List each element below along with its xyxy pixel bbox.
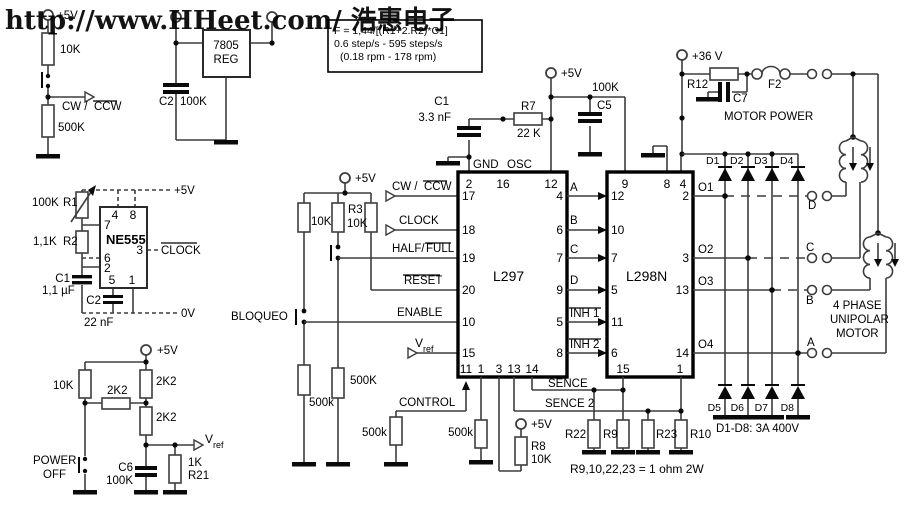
- o1-label: O1: [698, 182, 713, 194]
- phase-signal-wires: A B C D INH 1 INH 2: [567, 182, 607, 357]
- gnd-pin-label: GND: [473, 159, 499, 171]
- ground: [636, 450, 660, 455]
- pin: 3: [682, 251, 689, 265]
- sense-resistor-note: R9,10,22,23 = 1 ohm 2W: [570, 462, 704, 476]
- r23-ref: R23: [656, 429, 677, 441]
- o3-label: O3: [698, 276, 713, 288]
- connector-pin: [808, 286, 817, 295]
- resistor-r22: [588, 420, 600, 448]
- ccw-label: CCW: [94, 101, 122, 113]
- pin: 9: [556, 283, 563, 297]
- pin: 8: [664, 177, 671, 191]
- resistor-500k: [390, 417, 402, 445]
- r10-ref: R10: [690, 429, 711, 441]
- connector-pin: [823, 70, 832, 79]
- resistor-r8: [515, 437, 527, 465]
- pin: 19: [462, 251, 476, 265]
- motor-label-1: 4 PHASE: [833, 300, 882, 312]
- pin: 7: [556, 251, 563, 265]
- resistor-10k: [298, 203, 310, 232]
- pin: 14: [525, 362, 539, 376]
- r-value: 500k: [309, 397, 334, 409]
- sence-label: SENCE: [548, 378, 588, 390]
- phase-b-conn-label: B: [806, 295, 814, 307]
- enable-label: ENABLE: [397, 307, 443, 319]
- ground: [73, 490, 97, 495]
- c7-ref: C7: [733, 93, 748, 105]
- ground: [214, 140, 238, 145]
- ground: [669, 450, 693, 455]
- resistor-500k: [42, 105, 54, 137]
- resistor-2k2: [140, 407, 152, 435]
- cap-ref: C2: [159, 96, 174, 108]
- connector-pin: [808, 254, 817, 263]
- r21-ref: R21: [188, 470, 209, 482]
- ground: [713, 415, 737, 420]
- pin: 1: [478, 362, 485, 376]
- plus5v-terminal: [141, 345, 151, 355]
- plus36v-terminal: [677, 50, 687, 60]
- resistor-r12: [710, 68, 738, 80]
- resistor-2k2: [102, 398, 130, 409]
- formula-line3: (0.18 rpm - 178 rpm): [340, 51, 436, 63]
- connector-pin: [823, 286, 832, 295]
- resistor-r7: [514, 113, 542, 125]
- connector-pin: [823, 192, 832, 201]
- ground: [736, 415, 760, 420]
- pin: 5: [109, 273, 116, 287]
- phase-a-label: A: [570, 182, 578, 194]
- pin: 2: [682, 189, 689, 203]
- o4-label: O4: [698, 339, 714, 351]
- full-label: FULL: [426, 243, 455, 255]
- cw-label: CW /: [62, 101, 88, 113]
- vref-label: V: [415, 336, 423, 350]
- c1-ref: C1: [55, 273, 70, 285]
- r8-value: 10K: [531, 454, 552, 466]
- pin: 4: [112, 208, 119, 222]
- plus5v-label: +5V: [355, 173, 376, 185]
- pin: 20: [462, 283, 476, 297]
- schematic-page: +5V 10K CW / CCW 500K 7805 REG C2 100K F…: [0, 0, 916, 515]
- inh1-label: INH 1: [570, 308, 599, 320]
- pin: 7: [611, 251, 618, 265]
- input-pullup-block: +5V 10K R3 10K 500k 500K BLOQUEO: [231, 173, 377, 467]
- r12-ref: R12: [687, 79, 708, 91]
- resistor-r23: [642, 420, 654, 448]
- connector-pin: [808, 70, 817, 79]
- pin: 10: [462, 315, 476, 329]
- d2-ref: D2: [730, 155, 744, 167]
- pin: 3: [136, 243, 143, 257]
- plus5v-terminal: [340, 173, 350, 183]
- resistor-500k: [332, 368, 344, 398]
- pin: 6: [556, 223, 563, 237]
- motor-label-2: UNIPOLAR: [830, 314, 889, 326]
- plus5v-terminal: [546, 68, 556, 78]
- motor-windings: 4 PHASE UNIPOLAR MOTOR: [830, 134, 899, 353]
- inh2-label: INH 2: [570, 339, 599, 351]
- off-label: OFF: [43, 469, 66, 481]
- pin: 17: [462, 189, 476, 203]
- pin: 13: [507, 362, 521, 376]
- r8-ref: R8: [531, 441, 546, 453]
- r1-value: 100K: [32, 197, 59, 209]
- connector-pin: [808, 349, 817, 358]
- pin: 15: [462, 346, 476, 360]
- resistor-r3: [332, 203, 344, 232]
- ground: [292, 462, 316, 467]
- ground: [436, 161, 460, 166]
- connector-pin: [823, 254, 832, 263]
- ground: [578, 152, 602, 157]
- connector-pin: [823, 349, 832, 358]
- pin: 16: [496, 177, 510, 191]
- formula-line2: 0.6 step/s - 595 steps/s: [334, 38, 443, 50]
- resistor-r21: [169, 455, 181, 483]
- resistor-r9: [617, 420, 629, 448]
- pin: 13: [676, 283, 690, 297]
- r-value: 500K: [58, 122, 85, 134]
- stepper-driver-schematic: +5V 10K CW / CCW 500K 7805 REG C2 100K F…: [0, 0, 916, 515]
- c1-value: 3.3 nF: [418, 112, 451, 124]
- ground: [134, 490, 158, 495]
- reg-type: REG: [214, 54, 239, 66]
- clock-label: CLOCK: [399, 215, 439, 227]
- control-label: CONTROL: [399, 397, 456, 409]
- c6-value: 100K: [106, 475, 133, 487]
- pin: 5: [611, 283, 618, 297]
- r-value: 2K2: [156, 376, 176, 388]
- watermark-text: http://www.HHeet.com/ 浩惠电子: [5, 6, 455, 36]
- c6-ref: C6: [118, 462, 133, 474]
- diode-d8: [791, 385, 805, 399]
- resistor-10k: [79, 370, 91, 398]
- motor-label-3: MOTOR: [836, 328, 879, 340]
- c5-value: 100K: [592, 82, 619, 94]
- chip-name: L297: [493, 268, 524, 284]
- phase-c-label: C: [570, 244, 578, 256]
- r-value: 500K: [350, 375, 377, 387]
- ground: [696, 97, 720, 102]
- d3-ref: D3: [754, 155, 768, 167]
- d7-ref: D7: [755, 402, 769, 414]
- r-value: 500k: [362, 427, 387, 439]
- r-value: 10K: [60, 44, 81, 56]
- pin: 11: [611, 315, 624, 329]
- ground: [760, 415, 784, 420]
- ground: [326, 462, 350, 467]
- r3-ref: R3: [348, 204, 363, 216]
- diode-d6: [741, 385, 755, 399]
- vref-out-arrow: [194, 440, 203, 450]
- vref-generator-block: +5V 10K 2K2 2K2 2K2 POWER OFF C6 100K V …: [33, 345, 224, 495]
- current-arrows: [849, 147, 899, 267]
- plus5v-label: +5V: [561, 68, 582, 80]
- power-label: POWER: [33, 455, 76, 467]
- r2-value: 1,1K: [33, 236, 57, 248]
- zero-v-label: 0V: [181, 308, 195, 320]
- r3-value: 10K: [347, 218, 368, 230]
- r21-value: 1K: [188, 457, 202, 469]
- resistor-10k: [42, 33, 54, 65]
- ground: [582, 450, 606, 455]
- f2-ref: F2: [768, 79, 781, 91]
- vref-label: V: [205, 432, 213, 446]
- cap-value: 100K: [180, 96, 207, 108]
- r-value: 500k: [448, 427, 473, 439]
- plus5v-label: +5V: [174, 185, 195, 197]
- ccw-label: CCW: [424, 181, 452, 193]
- sence2-label: SENCE 2: [545, 398, 594, 410]
- plus5v-label: +5V: [531, 419, 552, 431]
- diode-d2: [741, 167, 755, 181]
- phase-d-conn-label: D: [808, 200, 816, 212]
- ground: [611, 450, 635, 455]
- phase-a-conn-label: A: [807, 337, 815, 349]
- reset-label: RESET: [404, 275, 442, 287]
- resistor-500k: [298, 365, 310, 395]
- diode-d1: [718, 167, 732, 181]
- reg-name: 7805: [213, 40, 239, 52]
- phase-c-conn-label: C: [806, 242, 814, 254]
- r-value: 2K2: [156, 412, 176, 424]
- oscillator-rc-block: C1 3.3 nF R7 22 K +5V 100K C5: [418, 68, 625, 172]
- r-value: 10K: [53, 380, 74, 392]
- diode-d4: [791, 167, 805, 181]
- pin: 4: [556, 189, 563, 203]
- clock-out-label: CLOCK: [161, 245, 201, 257]
- diode-note: D1-D8: 3A 400V: [716, 423, 799, 435]
- pin: 6: [611, 346, 618, 360]
- resistor-2k2: [140, 370, 152, 398]
- pin: 18: [462, 223, 476, 237]
- ground: [163, 490, 187, 495]
- pin: 15: [616, 362, 630, 376]
- l297-chip: L297 2 16 12 17 18 19 20 10 15 4 6 7 9 5…: [458, 159, 567, 377]
- output-rows: O1 O2 O3 O4 D C B A: [693, 182, 832, 358]
- phase-b-label: B: [570, 215, 578, 227]
- r1-ref: R1: [63, 197, 78, 209]
- r9-ref: R9: [603, 429, 618, 441]
- c5-ref: C5: [597, 100, 612, 112]
- plus5v-label: +5V: [157, 345, 178, 357]
- pin: 8: [556, 346, 563, 360]
- ground: [641, 153, 665, 158]
- r-value: 2K2: [107, 385, 127, 397]
- sense-network-block: CONTROL 500k 500k +5V R8 10K SENCE SENCE…: [362, 377, 711, 476]
- r7-value: 22 K: [517, 128, 541, 140]
- c2-ref: C2: [86, 295, 101, 307]
- ground: [384, 462, 408, 467]
- resistor-500k: [475, 420, 487, 448]
- pin: 10: [611, 223, 625, 237]
- vref-sub: ref: [213, 440, 224, 450]
- c1-ref: C1: [434, 96, 449, 108]
- d4-ref: D4: [780, 155, 794, 167]
- r7-ref: R7: [521, 101, 536, 113]
- pin: 7: [104, 218, 111, 232]
- pin: 1: [677, 362, 684, 376]
- resistor-r2: [76, 231, 88, 253]
- ground: [36, 154, 60, 159]
- fuse-end: [780, 69, 790, 79]
- osc-pin-label: OSC: [507, 159, 532, 171]
- chip-name: L298N: [626, 268, 667, 284]
- r22-ref: R22: [565, 429, 586, 441]
- pin: 8: [130, 208, 137, 222]
- plus5v-terminal: [516, 419, 526, 429]
- cw-label: CW /: [392, 181, 418, 193]
- r2-ref: R2: [63, 236, 78, 248]
- half-label: HALF/: [392, 243, 425, 255]
- bloqueo-label: BLOQUEO: [231, 311, 288, 323]
- diode-d3: [765, 167, 779, 181]
- ground: [469, 460, 493, 465]
- pin: 5: [556, 315, 563, 329]
- vref-sub: ref: [423, 344, 434, 354]
- d1-ref: D1: [706, 155, 720, 167]
- c1-value: 1,1 µF: [42, 285, 75, 297]
- o2-label: O2: [698, 244, 713, 256]
- r-value: 10K: [311, 216, 332, 228]
- phase-d-label: D: [570, 275, 578, 287]
- plus36v-label: +36 V: [692, 51, 723, 63]
- pin: 11: [460, 362, 473, 376]
- d8-ref: D8: [781, 402, 795, 414]
- ground: [786, 415, 810, 420]
- diode-d5: [718, 385, 732, 399]
- c2-value: 22 nF: [84, 317, 113, 329]
- ne555-block: NE555 4 8 7 6 2 3 5 1 +5V 100K R1 1,1K R…: [32, 185, 201, 329]
- d5-ref: D5: [708, 402, 722, 414]
- pin: 14: [676, 346, 690, 360]
- motor-power-label: MOTOR POWER: [724, 111, 813, 123]
- motor-power-block: +36 V R12 C7 F2 MOTOR POWER: [677, 50, 878, 233]
- fuse-end: [752, 69, 762, 79]
- pin: 12: [611, 189, 625, 203]
- d6-ref: D6: [731, 402, 745, 414]
- l298-chip: L298N 9 8 4 12 10 7 5 11 6 2 3 13 14 15 …: [607, 146, 693, 377]
- diode-d7: [765, 385, 779, 399]
- pin: 3: [496, 362, 503, 376]
- pin: 1: [129, 273, 136, 287]
